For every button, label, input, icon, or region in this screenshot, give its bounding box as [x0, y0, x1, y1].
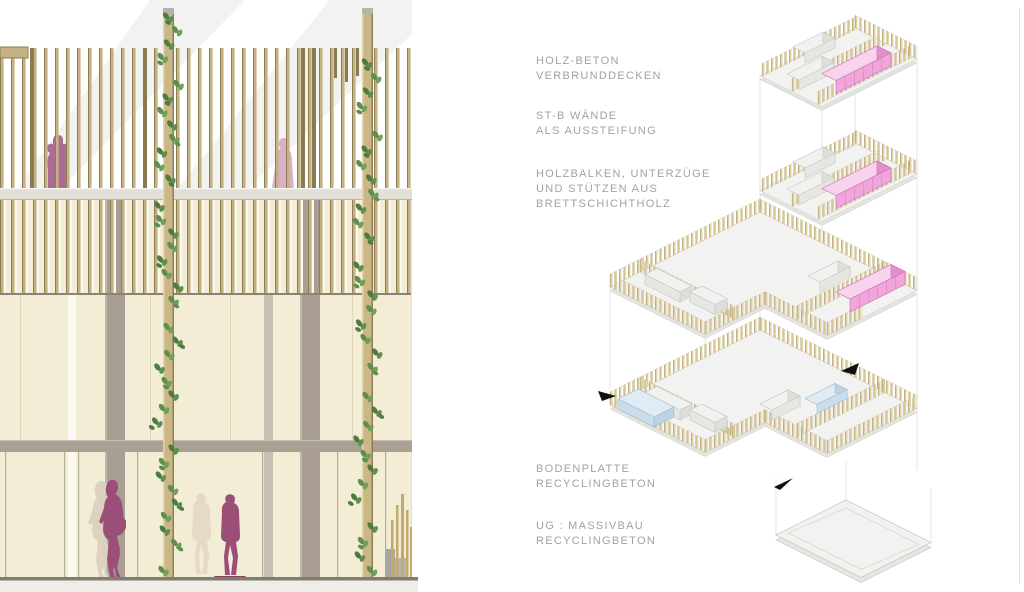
label-line: HOLZ-BETON: [536, 54, 662, 69]
transom-band: [0, 440, 412, 452]
timber-handrail-beam: [0, 47, 28, 58]
label-line: UG : MASSIVBAU: [536, 519, 656, 534]
label-line: HOLZBALKEN, UNTERZÜGE: [536, 167, 711, 182]
label-line: ST-B WÄNDE: [536, 109, 657, 124]
label-line: BRETTSCHICHTHOLZ: [536, 197, 711, 212]
facade-elevation-drawing: [0, 0, 512, 592]
axo-label-holz-beton: HOLZ-BETON VERBRUNDDECKEN: [536, 54, 662, 84]
label-line: BODENPLATTE: [536, 462, 656, 477]
axo-labels: HOLZ-BETON VERBRUNDDECKEN ST-B WÄNDE ALS…: [536, 0, 716, 592]
terrace-floor-slab: [0, 188, 412, 200]
ground-line: [0, 577, 418, 581]
brochure-page: HOLZ-BETON VERBRUNDDECKEN ST-B WÄNDE ALS…: [0, 0, 1024, 592]
label-line: RECYCLINGBETON: [536, 534, 656, 549]
axo-label-holzbalken: HOLZBALKEN, UNTERZÜGE UND STÜTZEN AUS BR…: [536, 167, 711, 212]
label-line: RECYCLINGBETON: [536, 477, 656, 492]
label-line: VERBRUNDDECKEN: [536, 69, 662, 84]
axo-label-stb-waende: ST-B WÄNDE ALS AUSSTEIFUNG: [536, 109, 657, 139]
axo-label-bodenplatte: BODENPLATTE RECYCLINGBETON: [536, 462, 656, 492]
label-line: ALS AUSSTEIFUNG: [536, 124, 657, 139]
label-line: UND STÜTZEN AUS: [536, 182, 711, 197]
page-border-line: [1019, 8, 1020, 584]
base-slab: [776, 500, 931, 583]
slat-screen-sill: [0, 293, 412, 295]
upper-slat-screen: [0, 200, 412, 293]
terrace-slat-screen: [0, 48, 412, 189]
ground-strip: [0, 581, 418, 592]
axo-label-ug-massivbau: UG : MASSIVBAU RECYCLINGBETON: [536, 519, 656, 549]
